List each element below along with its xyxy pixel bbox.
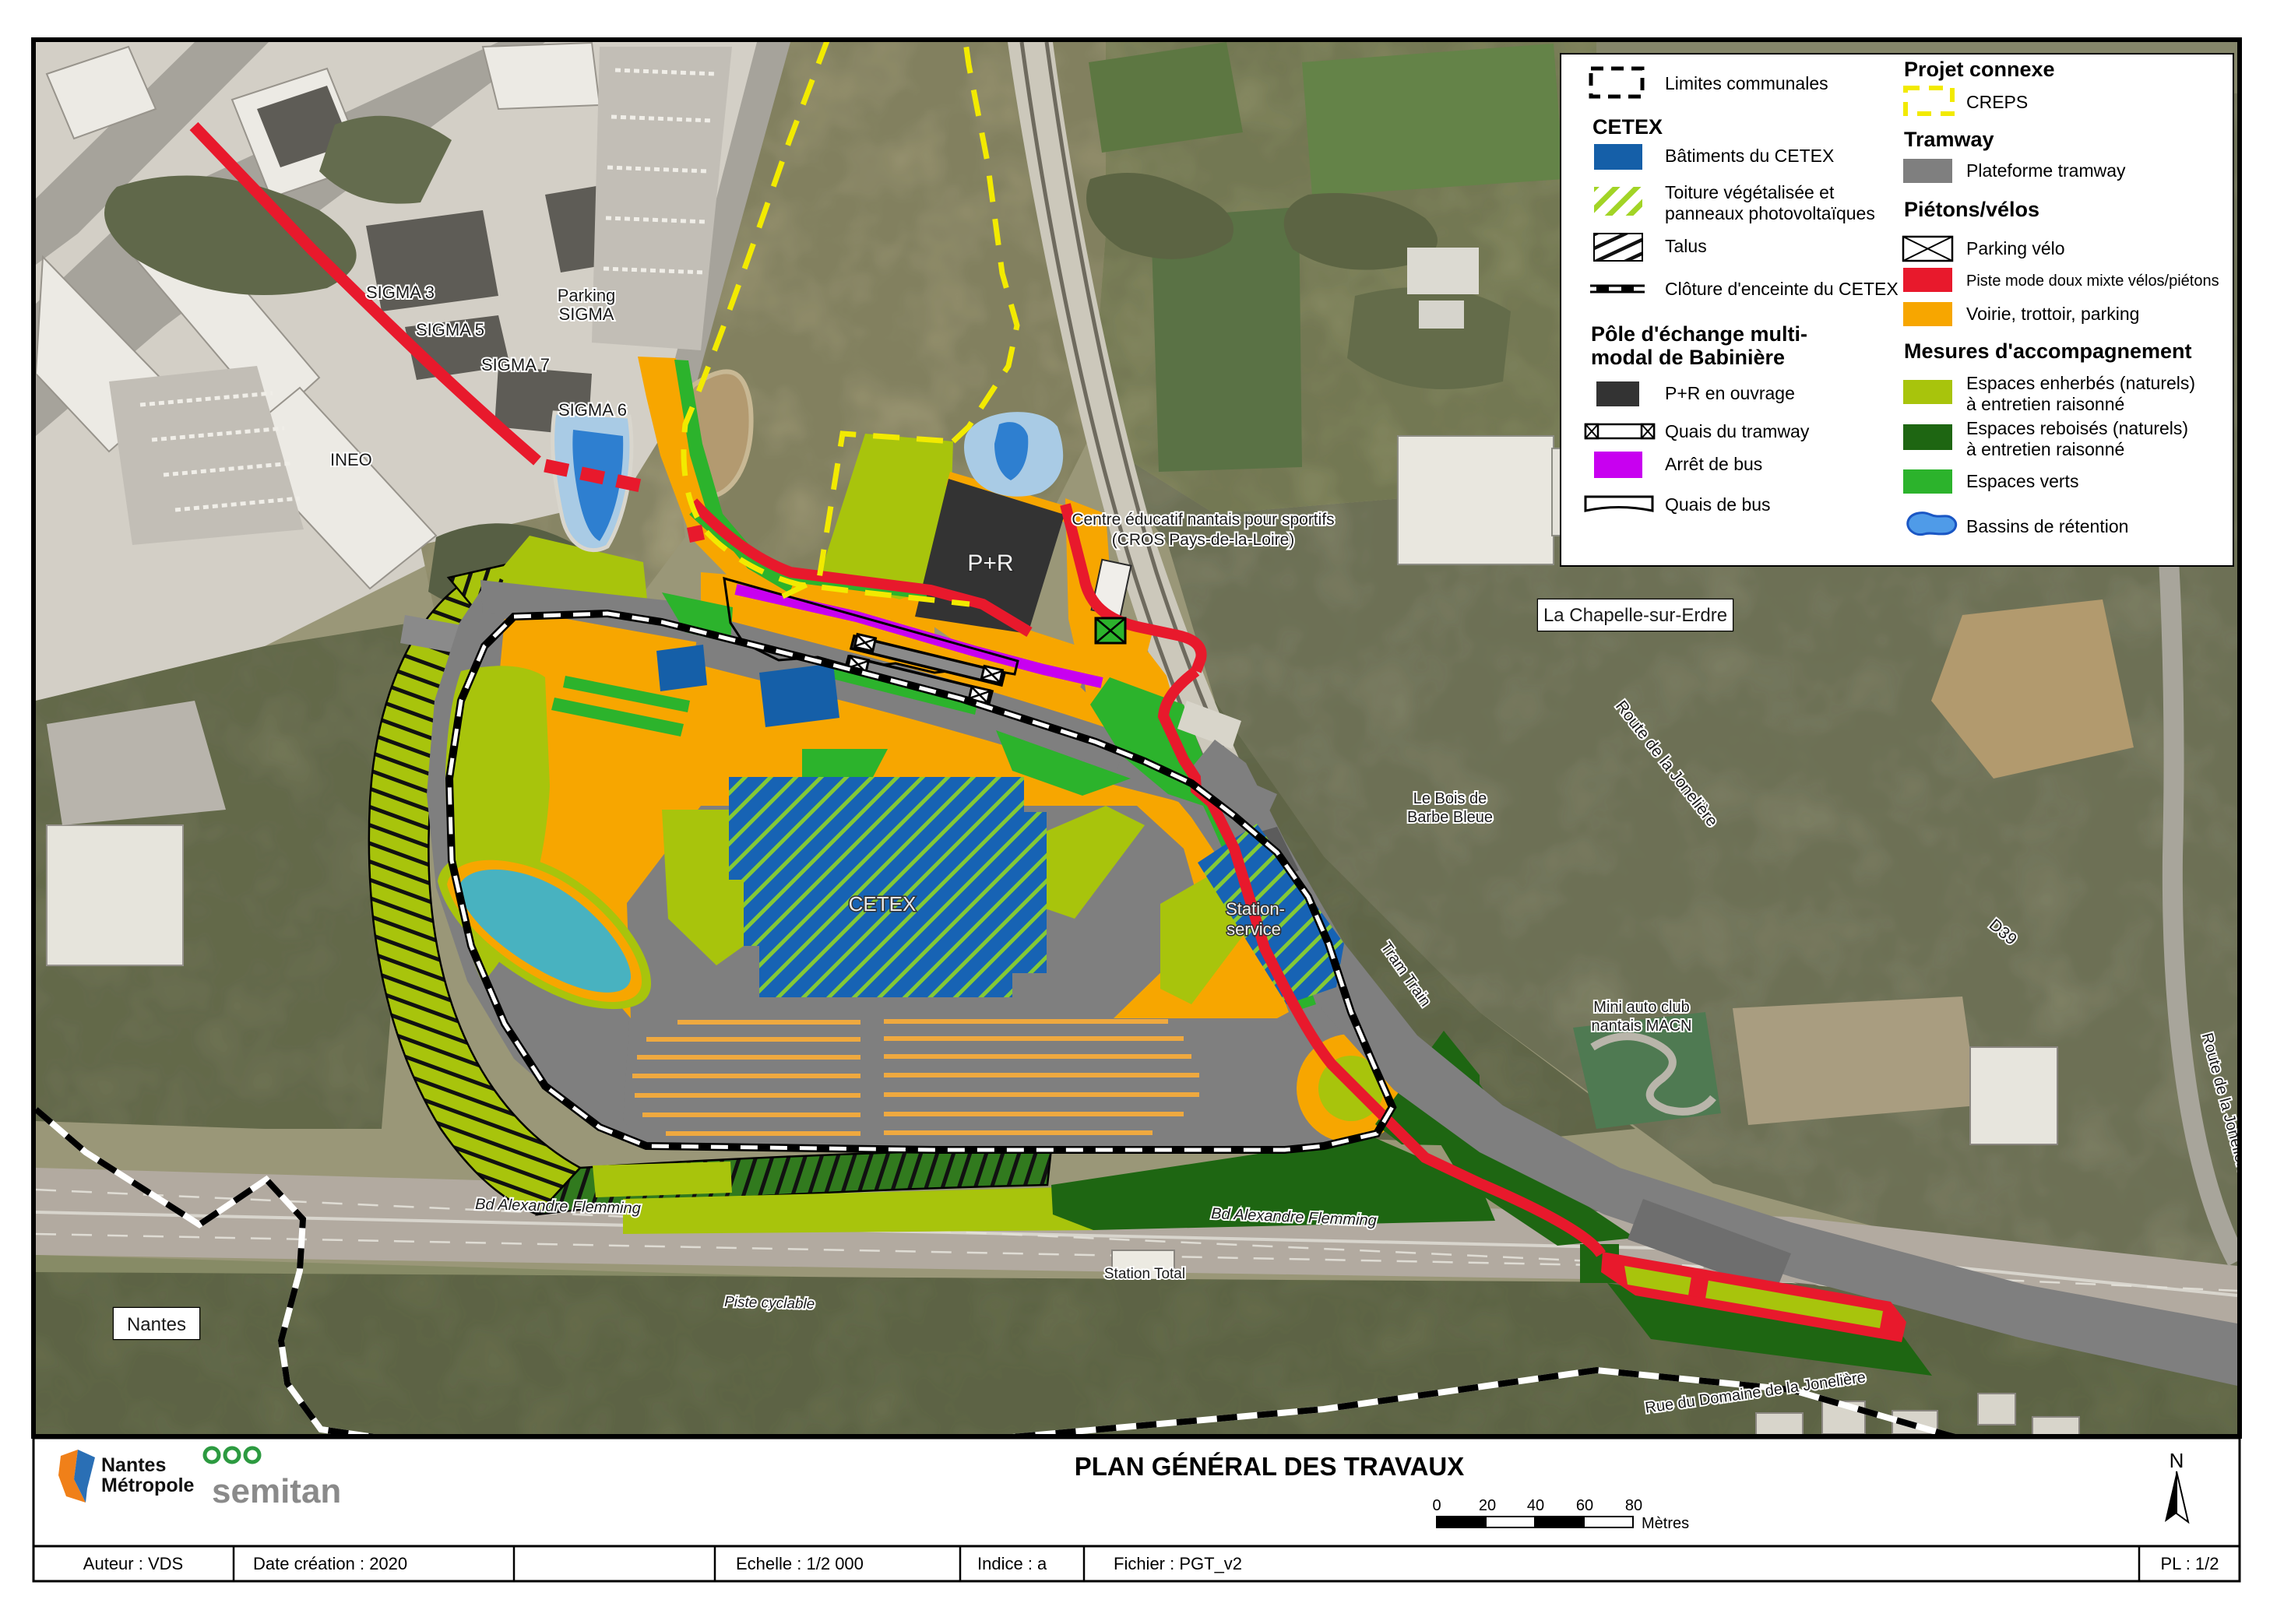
svg-text:Plateforme tramway: Plateforme tramway [1966,160,2126,181]
svg-text:Toiture végétalisée et: Toiture végétalisée et [1665,182,1835,202]
svg-text:Tramway: Tramway [1904,128,1994,151]
svg-text:Auteur : VDS: Auteur : VDS [83,1554,183,1573]
svg-text:panneaux photovoltaïques: panneaux photovoltaïques [1665,203,1875,223]
svg-text:Echelle : 1/2 000: Echelle : 1/2 000 [736,1554,864,1573]
svg-text:Mini auto club: Mini auto club [1593,999,1689,1016]
svg-text:Barbe Bleue: Barbe Bleue [1407,809,1493,826]
svg-text:0: 0 [1432,1497,1441,1514]
svg-text:Quais de bus: Quais de bus [1665,494,1771,515]
svg-text:Piétons/vélos: Piétons/vélos [1904,198,2039,221]
svg-text:80: 80 [1625,1497,1642,1514]
svg-text:Quais du tramway: Quais du tramway [1665,421,1810,441]
svg-text:Date création : 2020: Date création : 2020 [253,1554,407,1573]
svg-text:20: 20 [1479,1497,1496,1514]
svg-text:Métropole: Métropole [101,1475,195,1496]
svg-text:SIGMA 3: SIGMA 3 [366,283,435,302]
svg-text:La Chapelle-sur-Erdre: La Chapelle-sur-Erdre [1543,605,1727,626]
svg-text:Nantes: Nantes [127,1314,186,1335]
svg-text:Espaces enherbés (naturels): Espaces enherbés (naturels) [1966,373,2195,393]
svg-text:P+R en ouvrage: P+R en ouvrage [1665,383,1795,403]
svg-text:Piste cyclable: Piste cyclable [724,1294,815,1313]
svg-text:Limites communales: Limites communales [1665,73,1828,93]
svg-text:40: 40 [1527,1497,1544,1514]
svg-text:Projet connexe: Projet connexe [1904,58,2055,81]
svg-text:Bâtiments du CETEX: Bâtiments du CETEX [1665,146,1834,166]
svg-text:Arrêt de bus: Arrêt de bus [1665,454,1762,474]
svg-text:Fichier : PGT_v2: Fichier : PGT_v2 [1114,1554,1242,1573]
svg-text:CETEX: CETEX [849,892,917,916]
svg-text:Clôture d'enceinte du CETEX: Clôture d'enceinte du CETEX [1665,279,1899,299]
svg-text:CETEX: CETEX [1592,115,1663,139]
svg-text:SIGMA 6: SIGMA 6 [558,400,627,420]
svg-text:Station-: Station- [1226,899,1285,919]
svg-text:Le Bois de: Le Bois de [1413,790,1487,807]
svg-text:semitan: semitan [212,1472,341,1510]
svg-text:INEO: INEO [330,450,372,469]
svg-text:Pôle d'échange multi-: Pôle d'échange multi- [1591,322,1807,346]
svg-text:Centre éducatif nantais pour s: Centre éducatif nantais pour sportifs [1072,511,1334,529]
svg-text:Parking: Parking [558,286,616,305]
svg-text:CREPS: CREPS [1966,92,2028,112]
svg-text:PL : 1/2: PL : 1/2 [2160,1554,2219,1573]
svg-text:Talus: Talus [1665,236,1707,256]
svg-text:SIGMA 7: SIGMA 7 [481,355,550,374]
svg-text:à entretien raisonné: à entretien raisonné [1966,439,2124,459]
svg-text:Bassins de rétention: Bassins de rétention [1966,516,2128,536]
svg-text:Mesures d'accompagnement: Mesures d'accompagnement [1904,339,2192,363]
svg-text:Station Total: Station Total [1104,1266,1185,1282]
svg-text:P+R: P+R [967,550,1013,576]
svg-text:Mètres: Mètres [1642,1515,1689,1532]
svg-text:(CROS Pays-de-la-Loire): (CROS Pays-de-la-Loire) [1112,531,1295,549]
svg-text:Espaces verts: Espaces verts [1966,471,2078,491]
svg-text:Nantes: Nantes [101,1454,166,1476]
svg-text:Voirie, trottoir, parking: Voirie, trottoir, parking [1966,304,2139,324]
svg-text:Espaces reboisés (naturels): Espaces reboisés (naturels) [1966,418,2188,438]
svg-text:à entretien raisonné: à entretien raisonné [1966,394,2124,414]
svg-text:PLAN GÉNÉRAL DES TRAVAUX: PLAN GÉNÉRAL DES TRAVAUX [1075,1452,1465,1481]
svg-text:SIGMA 5: SIGMA 5 [416,320,484,339]
svg-text:nantais MACN: nantais MACN [1592,1018,1692,1035]
svg-text:modal de Babinière: modal de Babinière [1591,346,1785,369]
svg-text:Indice : a: Indice : a [977,1554,1047,1573]
svg-text:Parking vélo: Parking vélo [1966,238,2065,258]
svg-text:Piste mode doux mixte vélos/pi: Piste mode doux mixte vélos/piétons [1966,272,2219,290]
svg-text:N: N [2170,1449,2184,1472]
svg-text:SIGMA: SIGMA [559,304,614,324]
svg-text:service: service [1226,919,1281,939]
svg-text:60: 60 [1576,1497,1593,1514]
